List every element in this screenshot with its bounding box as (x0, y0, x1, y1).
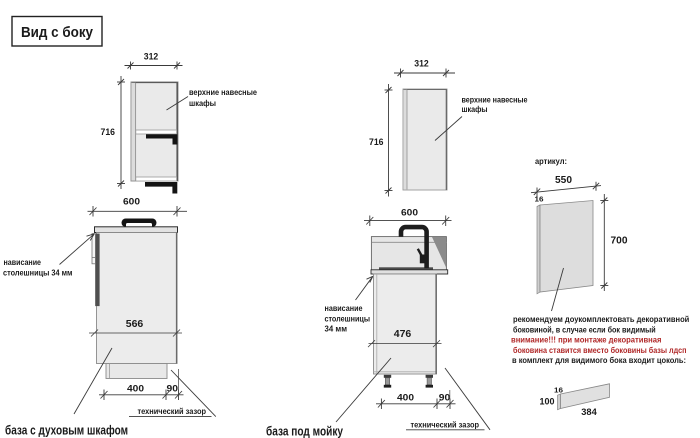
svg-text:400: 400 (127, 384, 144, 395)
svg-text:технический зазор: технический зазор (411, 421, 480, 430)
svg-text:312: 312 (144, 52, 159, 62)
svg-text:внимание!!! при монтаже декора: внимание!!! при монтаже декоративная (511, 336, 662, 345)
svg-text:90: 90 (439, 393, 451, 404)
svg-text:шкафы: шкафы (462, 105, 488, 114)
svg-text:нависание: нависание (325, 304, 363, 313)
svg-text:716: 716 (369, 137, 384, 147)
svg-text:верхние навесные: верхние навесные (189, 88, 257, 97)
svg-text:столешницы 34 мм: столешницы 34 мм (3, 269, 73, 278)
svg-text:боковина ставится вместо боков: боковина ставится вместо боковины базы л… (513, 346, 687, 355)
svg-text:Вид с боку: Вид с боку (21, 24, 94, 41)
svg-text:рекомендуем доукомплектовать д: рекомендуем доукомплектовать декоративно… (513, 315, 689, 324)
svg-text:550: 550 (555, 175, 572, 186)
svg-text:столешницы: столешницы (325, 314, 371, 323)
svg-text:нависание: нависание (4, 258, 42, 267)
svg-text:600: 600 (401, 208, 418, 219)
svg-text:700: 700 (611, 236, 628, 247)
svg-text:34 мм: 34 мм (325, 325, 348, 334)
svg-text:16: 16 (554, 386, 563, 395)
svg-text:312: 312 (414, 59, 429, 69)
svg-text:верхние навесные: верхние навесные (462, 96, 528, 105)
svg-text:боковиной, в случае если бок в: боковиной, в случае если бок видимый (513, 325, 656, 334)
svg-text:566: 566 (126, 319, 144, 330)
svg-text:384: 384 (581, 407, 597, 417)
svg-text:400: 400 (397, 393, 414, 404)
svg-text:476: 476 (394, 329, 412, 340)
svg-text:технический зазор: технический зазор (138, 407, 207, 416)
svg-text:16: 16 (535, 195, 544, 204)
svg-text:в комплект для видимого бока в: в комплект для видимого бока входит цоко… (512, 356, 686, 365)
svg-text:база под мойку: база под мойку (266, 424, 344, 438)
svg-text:шкафы: шкафы (189, 99, 216, 108)
svg-text:600: 600 (123, 197, 140, 208)
svg-text:100: 100 (540, 397, 555, 407)
svg-text:база с духовым шкафом: база с духовым шкафом (5, 423, 128, 438)
svg-text:716: 716 (101, 127, 116, 137)
svg-text:артикул:: артикул: (535, 156, 567, 166)
